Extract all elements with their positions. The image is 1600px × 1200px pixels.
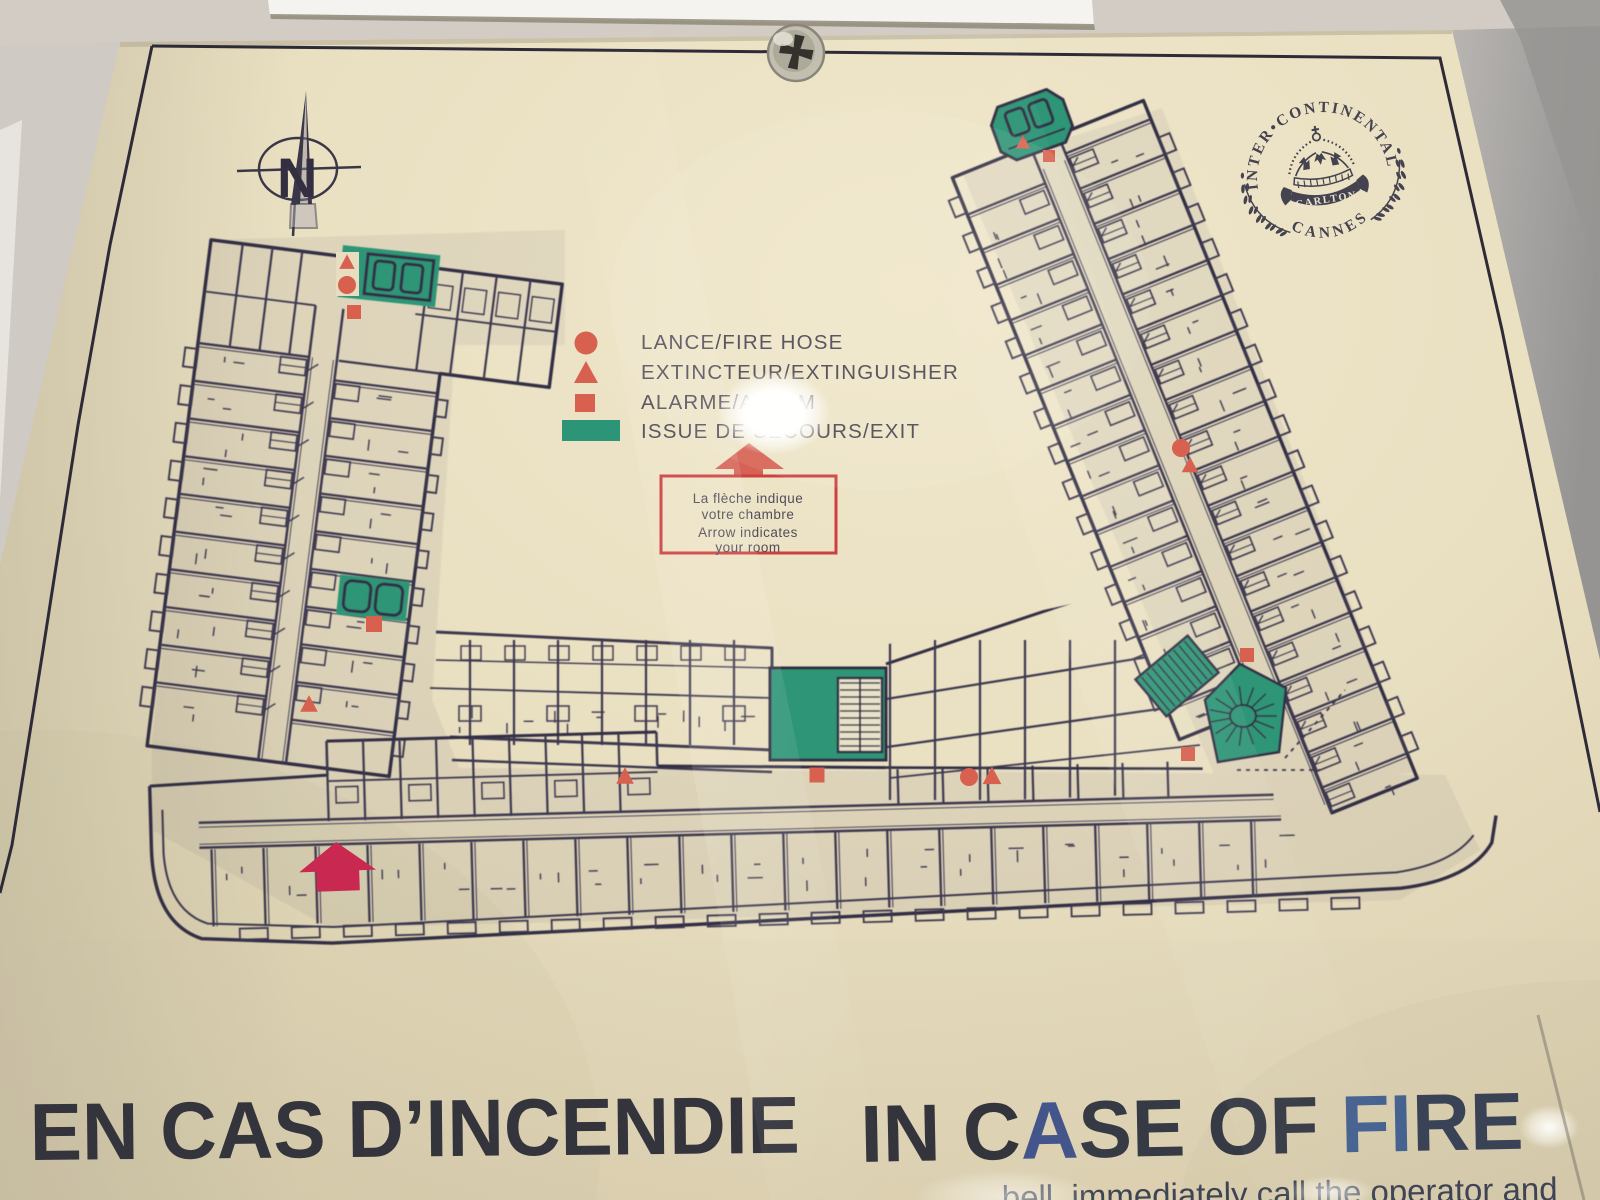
svg-text:N: N (277, 146, 317, 209)
svg-text:EN CAS D’INCENDIE: EN CAS D’INCENDIE (29, 1081, 800, 1178)
svg-text:IN CASE OF FIRE: IN CASE OF FIRE (860, 1077, 1525, 1180)
